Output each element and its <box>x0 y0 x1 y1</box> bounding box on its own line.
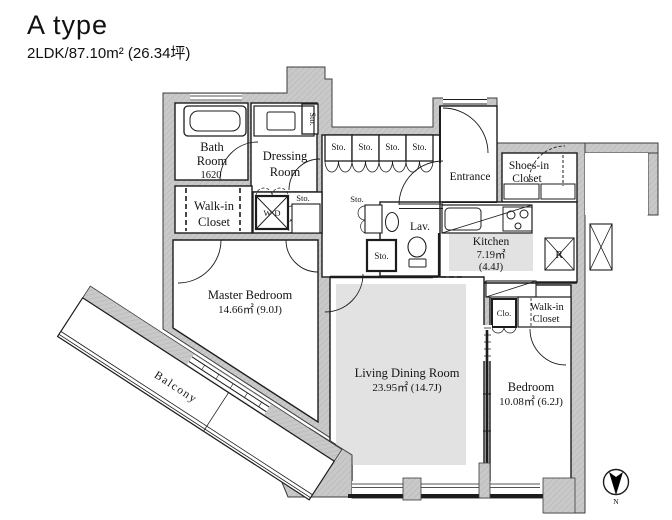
walkin-closet-left-label-2: Closet <box>198 215 230 229</box>
master-bedroom-label: Master Bedroom <box>208 288 293 302</box>
plan-area-subtitle: 2LDK/87.10m² (26.34坪) <box>27 42 190 63</box>
sto-row-label-2: Sto. <box>358 142 372 152</box>
compass-n-label: N <box>613 497 619 506</box>
clo-label: Clo. <box>497 308 511 318</box>
bath-room-label-2: Room <box>197 154 228 168</box>
dressing-room-label-1: Dressing <box>263 149 308 163</box>
dressing-storage-box <box>292 204 320 233</box>
entrance-label: Entrance <box>450 171 491 183</box>
walkin-closet-right-label-1: Walk-in <box>530 302 564 313</box>
floor-plan-page: A type 2LDK/87.10m² (26.34坪) <box>0 0 672 520</box>
master-bedroom-area-label: 14.66㎡ (9.0J) <box>218 303 282 316</box>
corridor-sto-box-label: Sto. <box>374 251 388 261</box>
sto-row-label-3: Sto. <box>385 142 399 152</box>
plan-type-title: A type <box>27 10 108 41</box>
bath-room-label-1: Bath <box>200 140 224 154</box>
sto-row-label-4: Sto. <box>412 142 426 152</box>
walkin-closet-right-label-2: Closet <box>533 314 560 325</box>
bedroom-label: Bedroom <box>508 380 555 394</box>
duct-sto-label: Sto. <box>308 112 318 125</box>
shoes-closet-label-1: Shoes-in <box>509 160 550 172</box>
sto-row-label-1: Sto. <box>331 142 345 152</box>
entrance-floor <box>440 106 497 202</box>
bath-size-label: 1620 <box>201 170 222 181</box>
corridor-sto-upper-label: Sto. <box>350 194 363 204</box>
bedroom-area-label: 10.08㎡ (6.2J) <box>499 395 563 408</box>
wd-label: W·D <box>264 208 281 218</box>
corridor-storage-upper-box <box>365 205 382 233</box>
utility-meter-box <box>590 224 612 270</box>
common-corridor-floor <box>585 153 648 215</box>
dressing-room-label-2: Room <box>270 165 301 179</box>
fridge-label: R <box>555 249 563 261</box>
kitchen-label: Kitchen <box>473 236 510 248</box>
compass: N <box>604 470 629 507</box>
ldr-area-label: 23.95㎡ (14.7J) <box>372 381 442 394</box>
shoes-closet-label-2: Closet <box>512 173 542 185</box>
kitchen-tatami-label: (4.4J) <box>479 262 504 273</box>
floor-plan-svg: N Bath Room 1620 Dressing Room Walk-in C… <box>0 0 672 520</box>
kitchen-area-label: 7.19㎡ <box>477 249 506 261</box>
walkin-closet-left-label-1: Walk-in <box>194 199 235 213</box>
lav-label: Lav. <box>410 221 430 233</box>
ldr-label: Living Dining Room <box>355 366 460 380</box>
dressing-sto-label: Sto. <box>296 193 309 203</box>
